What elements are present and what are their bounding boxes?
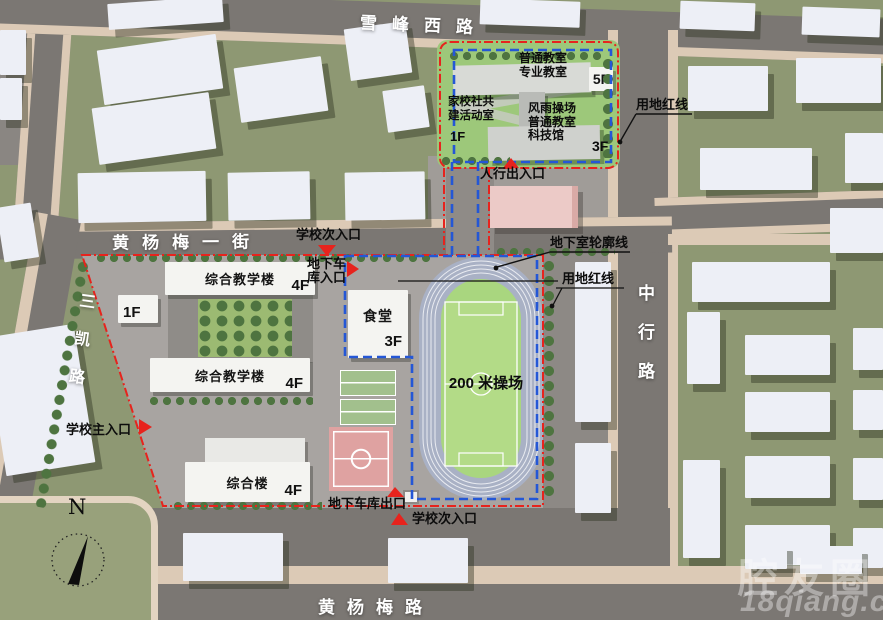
label-garage-exit: 地下车库出口 (328, 497, 406, 511)
label-playground: 200 米操场 (436, 377, 536, 391)
label-secondary-entrance-top: 学校次入口 (296, 228, 361, 242)
site-plan-canvas: 5F 综合教学楼 4F 1F 综合教学楼 4F 综合楼 4F 食堂 3F (0, 0, 883, 620)
road-label-huangyangmei-street: 黄杨梅一街 (112, 227, 262, 253)
label-classroom: 普通教室 专业教室 (509, 52, 577, 79)
label-gym-floor: 3F (592, 140, 608, 154)
label-land-red-line-top: 用地红线 (636, 98, 688, 112)
label-land-red-line-mid: 用地红线 (562, 272, 614, 286)
label-secondary-entrance-bottom: 学校次入口 (412, 512, 477, 526)
label-community-room: 家校社共 建活动室 (448, 96, 494, 123)
label-main-entrance: 学校主入口 (66, 423, 131, 437)
north-arrow-icon (68, 536, 88, 585)
label-community-floor: 1F (450, 130, 465, 144)
compass-icon (52, 534, 104, 586)
watermark-site: 18qiang.com (740, 585, 883, 619)
compass-north-label: N (68, 500, 86, 514)
plan-annotations-overlay (0, 0, 883, 620)
label-garage-entrance: 地下车 库入口 (307, 257, 346, 285)
label-basement-outline: 地下室轮廓线 (550, 236, 628, 250)
label-gym: 风雨操场 普通教室 科技馆 (528, 102, 576, 143)
road-label-huangyangmei-road: 黄杨梅路 (318, 593, 434, 618)
road-label-xuefeng: 雪峰西路 (360, 9, 489, 39)
road-label-zhonghang: 中行路 (632, 284, 657, 401)
label-pedestrian-entrance: 人行出入口 (480, 167, 545, 181)
